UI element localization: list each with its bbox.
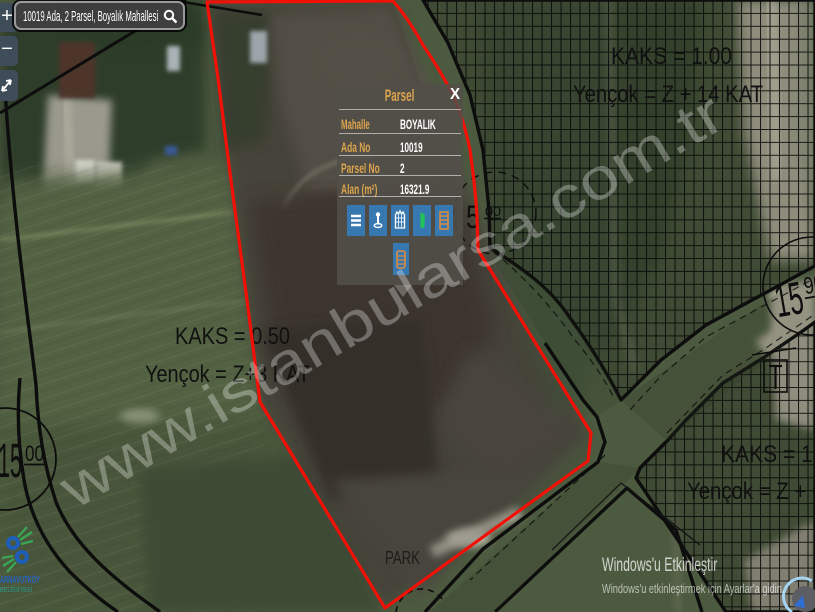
svg-text:BELEDİYESİ: BELEDİYESİ <box>0 585 32 594</box>
svg-text:Yençok = Z + 14 KAT: Yençok = Z + 14 KAT <box>573 81 763 108</box>
svg-text:Yençok = Z + 6 KAT: Yençok = Z + 6 KAT <box>687 478 815 505</box>
svg-text:KAKS = 1.00: KAKS = 1.00 <box>611 43 732 70</box>
svg-text:00: 00 <box>485 203 501 219</box>
svg-text:KAKS = 1.00: KAKS = 1.00 <box>721 441 815 468</box>
svg-text:Yençok = Z+3 KAT: Yençok = Z+3 KAT <box>145 361 310 388</box>
svg-text:15: 15 <box>0 435 22 488</box>
svg-text:PARK: PARK <box>385 548 420 568</box>
svg-text:KAKS = 0.50: KAKS = 0.50 <box>175 323 290 350</box>
svg-text:ARNAVUTKÖY: ARNAVUTKÖY <box>0 573 40 586</box>
svg-text:00: 00 <box>25 441 44 466</box>
